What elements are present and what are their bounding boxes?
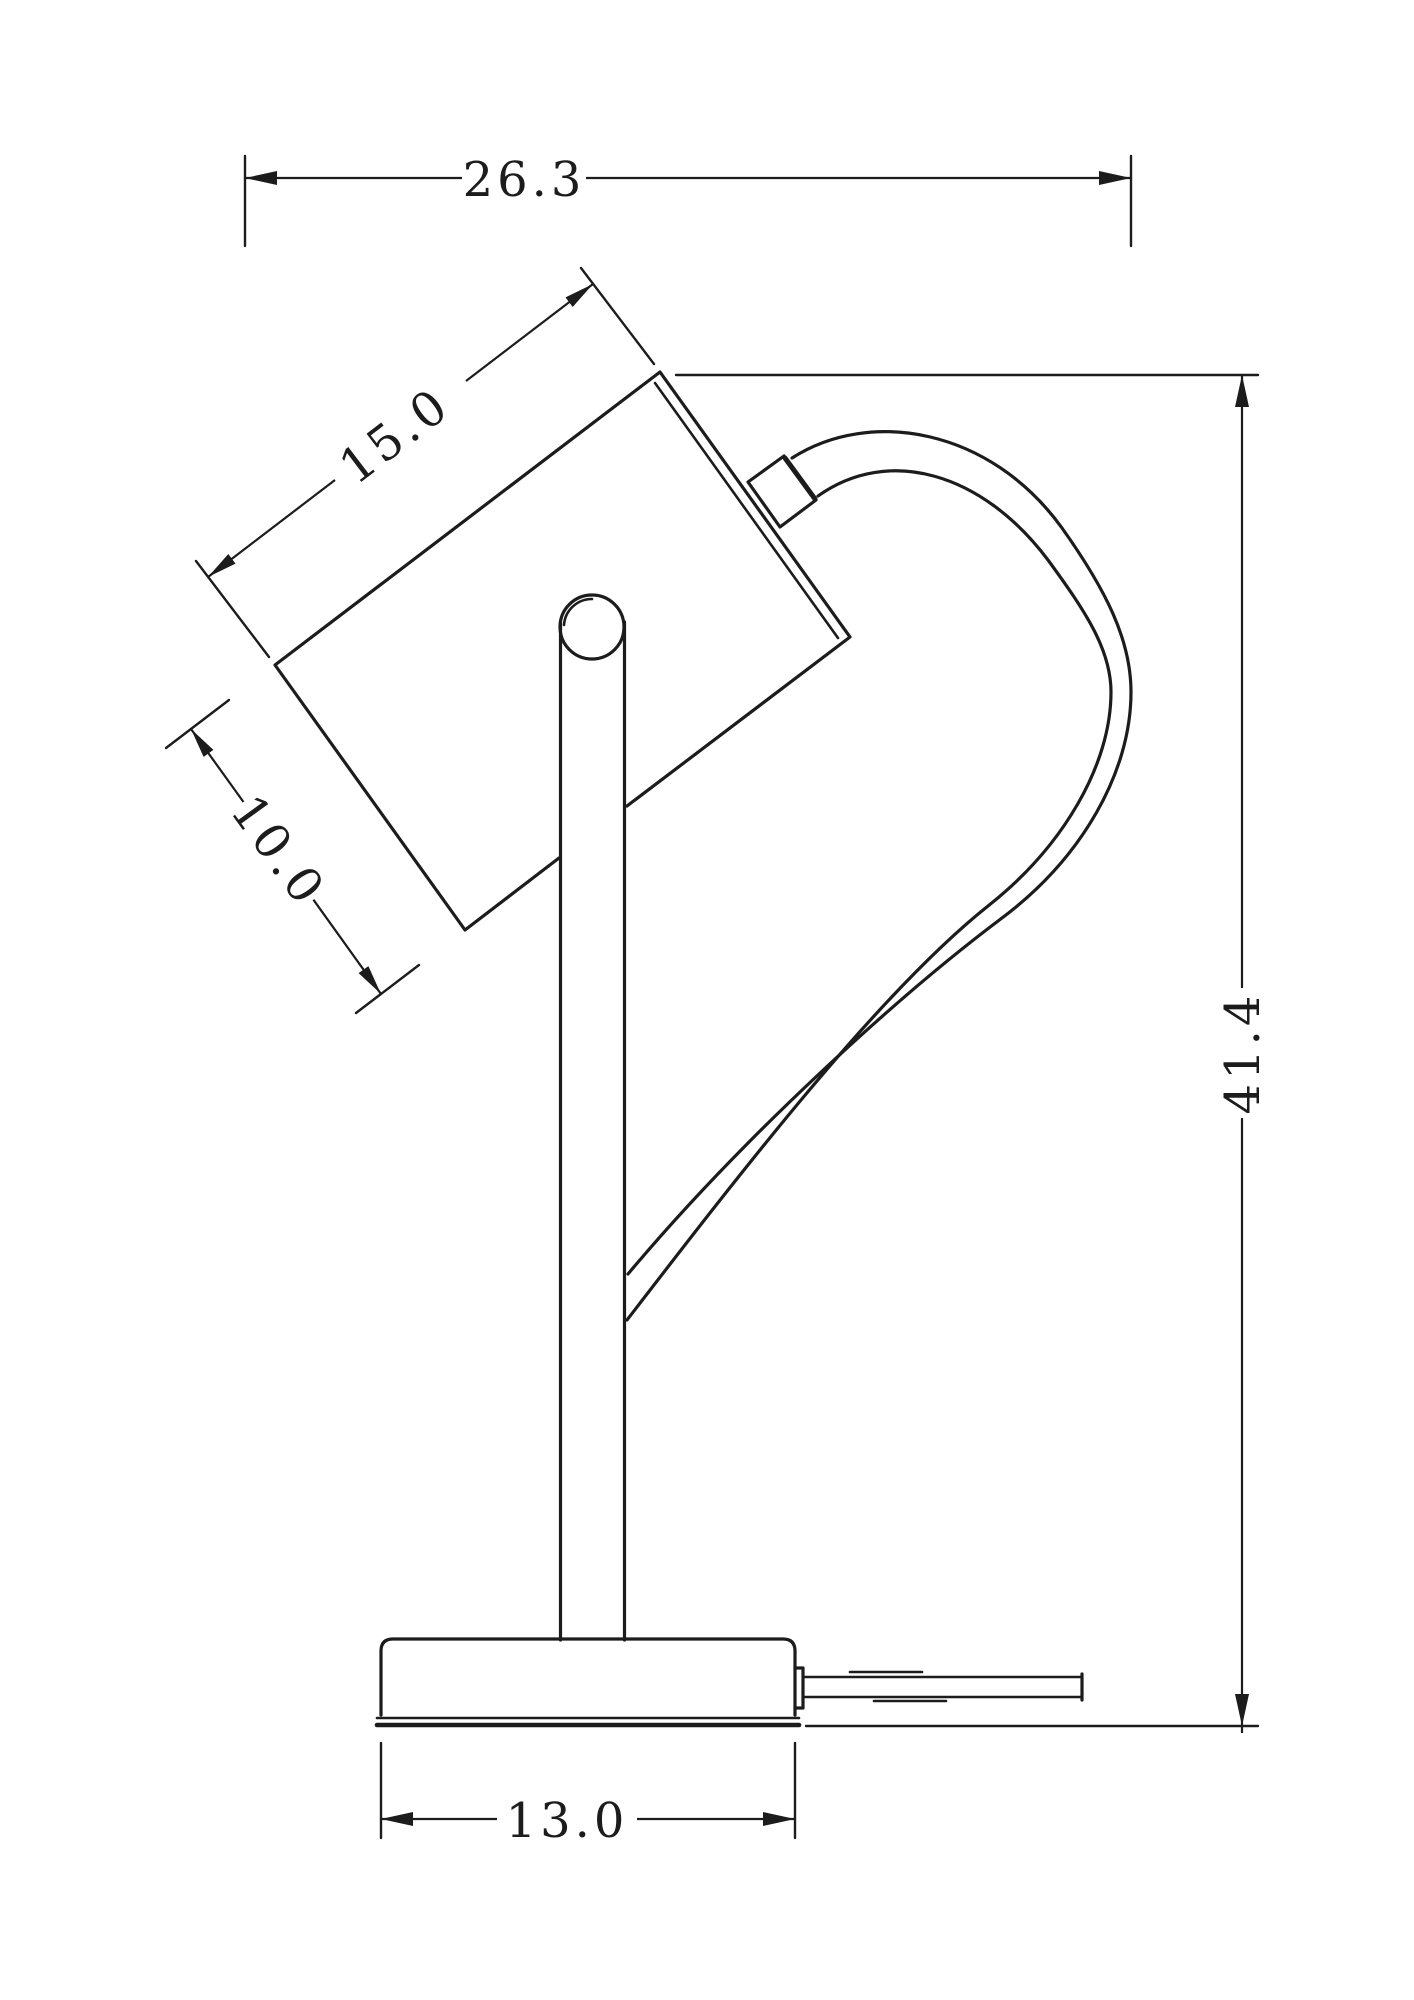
arrowhead-upper — [566, 284, 594, 307]
arrowhead-right — [763, 1812, 795, 1826]
lamp-head-rim-inner — [655, 383, 838, 638]
cable-connector-cap — [785, 458, 815, 499]
arrowhead-lower — [359, 966, 381, 994]
dim-head-length-label: 15.0 — [329, 376, 461, 495]
arrowhead-upper — [191, 729, 213, 757]
arrowhead-left — [245, 171, 277, 185]
dim-overall-width: 26.3 — [245, 152, 1131, 246]
ext-stroke-upper — [581, 268, 654, 364]
dim-overall-height: 41.4 — [676, 375, 1271, 1733]
dim-overall-width-label: 26.3 — [463, 152, 586, 208]
pivot-circle — [560, 595, 624, 659]
pivot-inner-arc — [564, 599, 592, 625]
arrowhead-bottom — [1235, 1694, 1249, 1726]
dim-base-width-label: 13.0 — [506, 1793, 629, 1849]
dim-head-depth: 10.0 — [166, 700, 419, 1013]
technical-drawing-canvas: 26.3 15.0 10.0 41.4 13.0 — [0, 0, 1414, 2000]
arm-outer-curve — [628, 432, 1131, 1274]
arrowhead-lower — [208, 554, 236, 577]
arrowhead-right — [1099, 171, 1131, 185]
dim-base-width: 13.0 — [381, 1743, 795, 1849]
cable-connector — [748, 456, 816, 527]
lamp-figure — [275, 372, 1131, 1725]
arrowhead-left — [381, 1812, 413, 1826]
arrowhead-top — [1235, 375, 1249, 407]
dim-overall-height-label: 41.4 — [1215, 992, 1271, 1115]
base-outline — [381, 1639, 795, 1715]
dim-head-depth-label: 10.0 — [219, 785, 337, 917]
ext-stroke-lower — [196, 561, 269, 657]
lamp-dimension-drawing: 26.3 15.0 10.0 41.4 13.0 — [0, 0, 1414, 2000]
